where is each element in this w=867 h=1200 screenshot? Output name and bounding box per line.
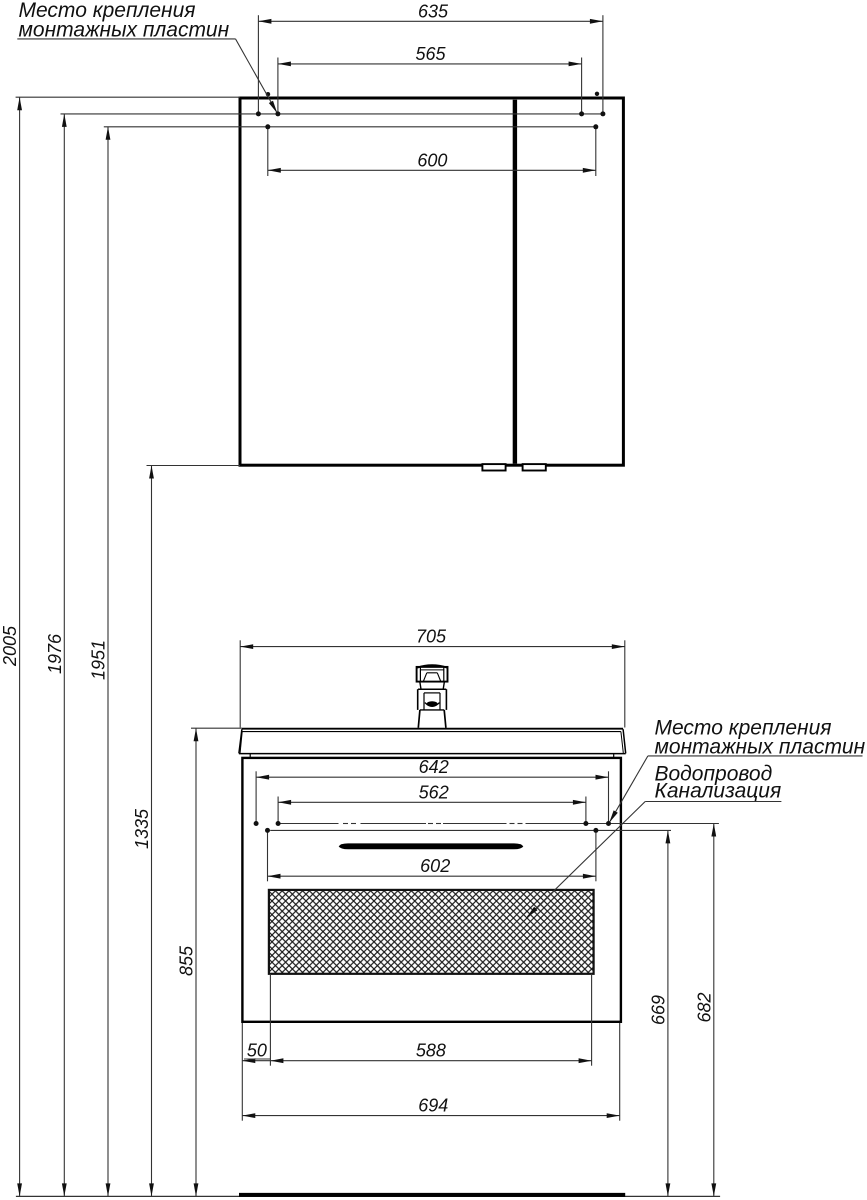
svg-text:1976: 1976 xyxy=(45,633,65,674)
svg-text:монтажных пластин: монтажных пластин xyxy=(655,736,866,759)
svg-text:50: 50 xyxy=(247,1040,267,1060)
svg-text:588: 588 xyxy=(416,1040,446,1060)
svg-text:855: 855 xyxy=(177,945,197,976)
svg-text:669: 669 xyxy=(648,995,668,1025)
svg-text:600: 600 xyxy=(417,150,447,170)
svg-text:565: 565 xyxy=(415,44,446,64)
svg-text:642: 642 xyxy=(419,757,449,777)
svg-text:682: 682 xyxy=(694,992,714,1022)
svg-text:602: 602 xyxy=(420,856,450,876)
svg-text:1951: 1951 xyxy=(89,640,109,680)
svg-text:Канализация: Канализация xyxy=(655,780,782,803)
svg-text:562: 562 xyxy=(419,782,449,802)
svg-text:монтажных пластин: монтажных пластин xyxy=(19,19,230,42)
svg-text:705: 705 xyxy=(416,627,447,647)
svg-text:1335: 1335 xyxy=(132,808,152,849)
svg-text:694: 694 xyxy=(418,1096,448,1116)
svg-text:2005: 2005 xyxy=(0,625,20,667)
svg-text:635: 635 xyxy=(418,1,449,21)
